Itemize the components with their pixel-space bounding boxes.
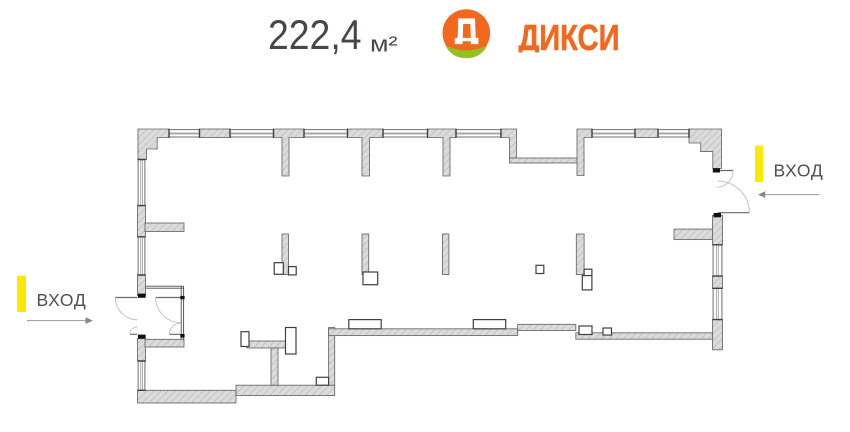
svg-text:222,4: 222,4	[268, 11, 362, 58]
svg-text:ДИКСИ: ДИКСИ	[519, 17, 620, 58]
svg-text:м²: м²	[370, 32, 398, 57]
svg-text:ВХОД: ВХОД	[37, 290, 87, 310]
svg-text:ВХОД: ВХОД	[774, 161, 824, 181]
